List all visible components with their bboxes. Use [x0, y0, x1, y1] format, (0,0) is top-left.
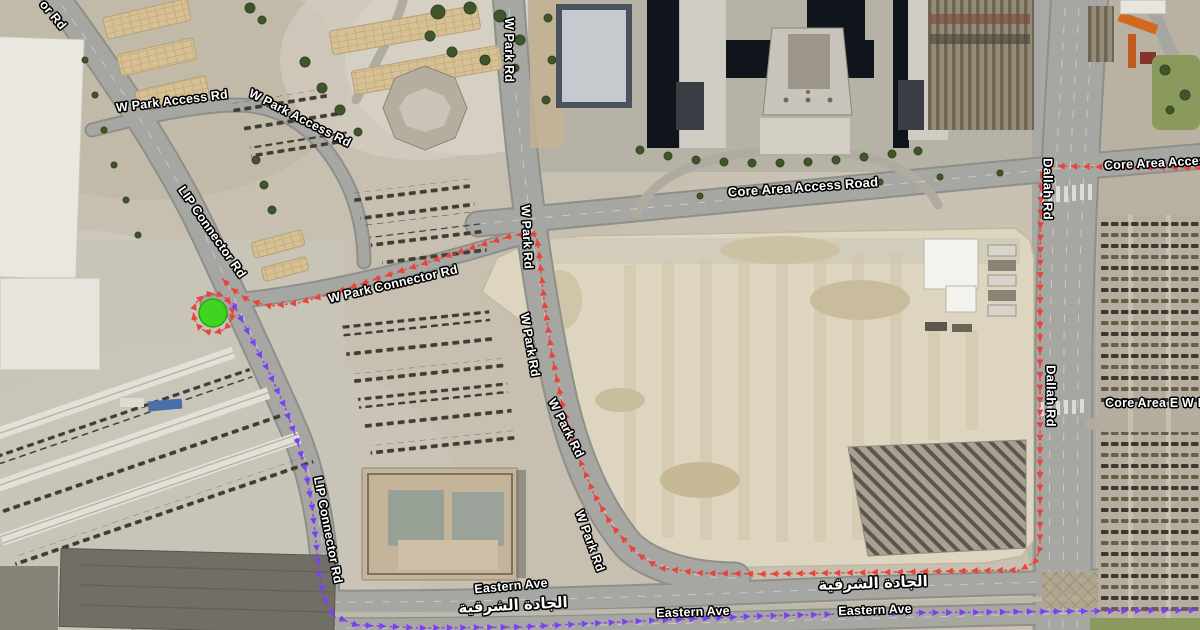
outbound-route-arrow [514, 624, 521, 630]
inbound-route-arrow [301, 297, 309, 305]
outbound-route-arrow [528, 623, 535, 630]
inbound-route-arrow [1037, 285, 1044, 292]
inbound-route-arrow [572, 447, 581, 456]
outbound-route-arrow [636, 617, 643, 624]
outbound-route-arrow [420, 625, 427, 630]
outbound-route-arrow [1121, 607, 1128, 614]
outbound-route-path [233, 303, 1200, 628]
outbound-route-arrow [716, 614, 723, 621]
destination-ring-arrow [203, 327, 212, 336]
inbound-route-arrow [671, 566, 679, 574]
inbound-route-arrow [548, 350, 556, 358]
outbound-route-arrow [689, 615, 696, 622]
inbound-route-arrow [408, 263, 417, 272]
inbound-route-arrow [325, 290, 333, 298]
inbound-route-arrow [933, 568, 940, 575]
outbound-route-arrow [297, 451, 305, 459]
inbound-route-arrow [1008, 567, 1015, 574]
inbound-route-arrow [1095, 163, 1102, 170]
inbound-route-arrow [543, 313, 551, 321]
inbound-route-arrow [1037, 197, 1044, 204]
inbound-route-arrow [1037, 185, 1044, 192]
inbound-route-arrow [1037, 385, 1044, 392]
inbound-route-arrow [1037, 260, 1044, 267]
inbound-route-arrow [1019, 563, 1028, 572]
outbound-route-arrow [433, 624, 440, 630]
outbound-route-arrow [366, 622, 373, 629]
outbound-route-arrow [743, 613, 750, 620]
outbound-route-arrow [663, 616, 670, 623]
inbound-route-arrow [833, 569, 840, 576]
destination-ring-arrow [190, 302, 199, 311]
inbound-route-arrow [443, 252, 452, 261]
outbound-route-arrow [262, 363, 271, 372]
inbound-route-arrow [783, 570, 790, 577]
outbound-route-arrow [284, 412, 293, 421]
inbound-route-arrow [561, 411, 570, 420]
inbound-route-arrow [971, 567, 978, 574]
outbound-route-arrow [986, 609, 993, 616]
outbound-route-arrow [487, 624, 494, 630]
inbound-route-arrow [871, 569, 878, 576]
outbound-route-arrow [784, 612, 791, 619]
inbound-route-arrow [1037, 210, 1044, 217]
inbound-route-arrow [1083, 163, 1090, 170]
inbound-route-arrow [921, 568, 928, 575]
inbound-route-arrow [467, 244, 476, 253]
inbound-route-arrow [958, 567, 965, 574]
inbound-route-arrow [1037, 322, 1044, 329]
inbound-route-arrow [1120, 164, 1127, 171]
inbound-route-arrow [576, 458, 585, 467]
inbound-route-arrow [1037, 247, 1044, 254]
destination-ring-arrow [228, 314, 236, 322]
inbound-route-arrow [1037, 235, 1044, 242]
outbound-route-arrow [838, 610, 845, 617]
inbound-route-arrow [683, 568, 691, 576]
outbound-route-arrow [318, 584, 326, 592]
inbound-route-arrow [1183, 164, 1190, 171]
inbound-route-arrow [546, 338, 554, 346]
inbound-route-arrow [1070, 163, 1077, 170]
outbound-route-arrow [1067, 608, 1074, 615]
outbound-route-arrow [609, 619, 616, 626]
inbound-route-arrow [1170, 164, 1177, 171]
outbound-route-arrow [460, 624, 467, 630]
inbound-route-arrow [503, 233, 511, 241]
outbound-route-arrow [268, 375, 277, 384]
inbound-route-arrow [983, 567, 990, 574]
outbound-route-arrow [273, 387, 282, 396]
inbound-route-arrow [544, 325, 552, 333]
inbound-route-arrow [1037, 372, 1044, 379]
outbound-route-arrow [973, 609, 980, 616]
inbound-route-arrow [1145, 164, 1152, 171]
inbound-route-arrow [658, 564, 666, 572]
outbound-route-arrow [676, 616, 683, 623]
outbound-route-arrow [406, 624, 413, 630]
outbound-route-arrow [541, 622, 548, 629]
inbound-route-arrow [348, 282, 357, 291]
inbound-route-arrow [384, 271, 393, 280]
outbound-route-arrow [1135, 607, 1142, 614]
outbound-route-arrow [1094, 608, 1101, 615]
inbound-route-arrow [516, 231, 523, 238]
inbound-route-arrow [808, 570, 815, 577]
inbound-route-arrow [946, 568, 953, 575]
inbound-route-arrow [647, 558, 656, 567]
inbound-route-arrow [883, 569, 890, 576]
inbound-route-arrow [229, 285, 238, 294]
inbound-route-arrow [597, 503, 606, 512]
outbound-route-arrow [825, 611, 832, 618]
outbound-route-arrow [279, 400, 288, 409]
inbound-route-arrow [733, 570, 740, 577]
inbound-route-arrow [1037, 410, 1044, 417]
outbound-route-arrow [393, 623, 400, 630]
inbound-route-arrow [1035, 546, 1044, 555]
outbound-route-arrow [1148, 607, 1155, 614]
outbound-route-arrow [959, 609, 966, 616]
outbound-route-arrow [649, 617, 656, 624]
route-overlay [0, 0, 1200, 630]
outbound-route-arrow [313, 545, 320, 552]
outbound-route-arrow [1108, 607, 1115, 614]
inbound-route-arrow [538, 276, 545, 283]
inbound-route-arrow [1037, 335, 1044, 342]
inbound-route-arrow [539, 288, 546, 295]
inbound-route-arrow [586, 481, 595, 490]
inbound-route-arrow [1037, 522, 1044, 529]
outbound-route-arrow [568, 621, 575, 628]
outbound-route-arrow [865, 610, 872, 617]
outbound-route-arrow [1027, 608, 1034, 615]
outbound-route-arrow [289, 425, 298, 434]
outbound-route-arrow [1054, 608, 1061, 615]
outbound-route-arrow [308, 504, 316, 512]
outbound-route-arrow [919, 609, 926, 616]
inbound-route-arrow [1037, 497, 1044, 504]
inbound-route-arrow [537, 264, 544, 271]
outbound-route-arrow [243, 327, 252, 336]
outbound-route-arrow [932, 609, 939, 616]
outbound-route-arrow [730, 614, 737, 621]
inbound-route-arrow [1037, 472, 1044, 479]
inbound-route-arrow [696, 569, 703, 576]
outbound-route-arrow [811, 611, 818, 618]
inbound-route-arrow [896, 569, 903, 576]
inbound-route-arrow [396, 267, 405, 276]
outbound-route-arrow [314, 558, 321, 565]
inbound-route-arrow [858, 569, 865, 576]
outbound-route-arrow [555, 622, 562, 629]
outbound-route-arrow [379, 623, 386, 630]
inbound-route-arrow [908, 568, 915, 575]
inbound-route-arrow [996, 567, 1003, 574]
outbound-route-arrow [447, 624, 454, 630]
inbound-route-arrow [1037, 510, 1044, 517]
outbound-route-arrow [1162, 607, 1169, 614]
outbound-route-arrow [311, 531, 319, 539]
outbound-route-arrow [501, 624, 508, 630]
inbound-route-arrow [708, 570, 715, 577]
outbound-route-arrow [703, 615, 710, 622]
inbound-route-arrow [1037, 347, 1044, 354]
inbound-route-arrow [420, 259, 429, 268]
inbound-route-arrow [1037, 222, 1044, 229]
inbound-route-arrow [479, 240, 487, 248]
inbound-route-arrow [568, 435, 577, 444]
inbound-route-arrow [1058, 163, 1065, 170]
outbound-route-arrow [757, 612, 764, 619]
inbound-route-arrow [1158, 164, 1165, 171]
outbound-route-arrow [582, 620, 589, 627]
inbound-route-arrow [289, 300, 296, 307]
inbound-route-arrow [1037, 535, 1044, 542]
inbound-route-arrow [846, 569, 853, 576]
outbound-route-arrow [310, 518, 318, 526]
outbound-route-arrow [339, 615, 348, 624]
inbound-route-arrow [1037, 460, 1044, 467]
outbound-route-arrow [771, 612, 778, 619]
outbound-route-arrow [1189, 607, 1196, 614]
inbound-route-arrow [591, 492, 600, 501]
inbound-route-arrow [1037, 435, 1044, 442]
inbound-route-arrow [360, 278, 369, 287]
inbound-route-arrow [455, 248, 464, 257]
outbound-route-arrow [852, 610, 859, 617]
inbound-route-arrow [313, 294, 321, 302]
outbound-route-arrow [1013, 608, 1020, 615]
outbound-route-arrow [256, 351, 265, 360]
outbound-route-arrow [892, 609, 899, 616]
inbound-route-arrow [1195, 165, 1200, 172]
inbound-route-arrow [541, 301, 549, 309]
inbound-route-arrow [1037, 297, 1044, 304]
inbound-route-arrow [252, 298, 260, 306]
inbound-route-path [220, 166, 1200, 574]
inbound-route-arrow [721, 570, 728, 577]
inbound-route-arrow [565, 423, 574, 432]
outbound-route-arrow [474, 624, 481, 630]
inbound-route-arrow [372, 275, 381, 284]
inbound-route-arrow [1133, 164, 1140, 171]
inbound-route-arrow [1108, 164, 1115, 171]
inbound-route-arrow [581, 470, 590, 479]
outbound-route-arrow [1081, 608, 1088, 615]
outbound-route-arrow [878, 610, 885, 617]
inbound-route-arrow [1037, 447, 1044, 454]
outbound-route-arrow [1000, 609, 1007, 616]
inbound-route-arrow [1030, 557, 1040, 567]
inbound-route-arrow [529, 231, 536, 238]
outbound-route-arrow [237, 315, 246, 324]
outbound-route-arrow [321, 597, 330, 606]
inbound-route-arrow [240, 293, 249, 302]
outbound-route-arrow [905, 609, 912, 616]
inbound-route-arrow [758, 571, 765, 578]
outbound-route-arrow [1040, 608, 1047, 615]
outbound-route-arrow [622, 618, 629, 625]
inbound-route-arrow [337, 286, 346, 295]
outbound-route-arrow [595, 619, 602, 626]
inbound-route-arrow [264, 301, 272, 309]
inbound-route-arrow [1037, 485, 1044, 492]
inbound-route-arrow [1037, 422, 1044, 429]
destination-marker[interactable] [199, 299, 227, 327]
inbound-route-arrow [636, 551, 645, 560]
inbound-route-arrow [771, 570, 778, 577]
outbound-route-arrow [798, 611, 805, 618]
inbound-route-arrow [603, 514, 612, 523]
inbound-route-arrow [1037, 360, 1044, 367]
inbound-route-arrow [746, 570, 753, 577]
inbound-route-arrow [536, 251, 543, 258]
outbound-route-arrow [946, 609, 953, 616]
outbound-route-arrow [1175, 607, 1182, 614]
outbound-route-arrow [249, 339, 258, 348]
inbound-route-arrow [1037, 272, 1044, 279]
inbound-route-arrow [432, 255, 441, 264]
outbound-route-arrow [316, 571, 324, 579]
satellite-map[interactable]: or RdW Park Access RdW Park Access RdLIP… [0, 0, 1200, 630]
inbound-route-arrow [1037, 310, 1044, 317]
destination-ring-arrow [216, 291, 225, 300]
inbound-route-arrow [821, 570, 828, 577]
inbound-route-arrow [1037, 397, 1044, 404]
inbound-route-arrow [796, 570, 803, 577]
inbound-route-arrow [491, 237, 499, 245]
inbound-route-arrow [276, 301, 283, 308]
